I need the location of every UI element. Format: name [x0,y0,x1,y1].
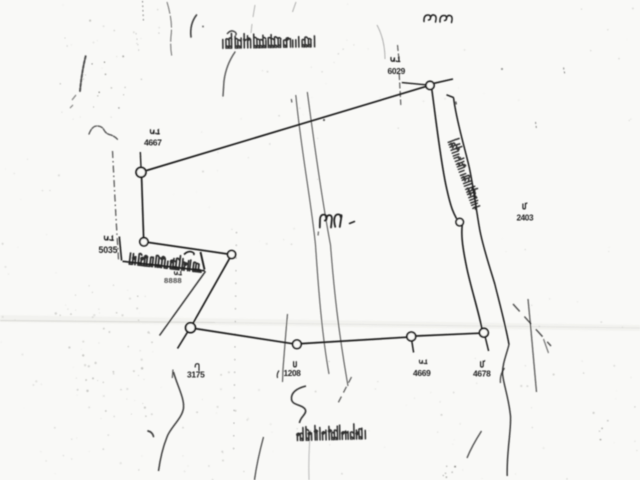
svg-text:6029: 6029 [388,66,406,76]
svg-text:2403: 2403 [517,214,534,223]
svg-text:1208: 1208 [284,369,302,378]
svg-text:8888: 8888 [164,276,182,285]
svg-text:4667: 4667 [144,138,162,148]
svg-text:3175: 3175 [187,369,205,379]
svg-text:5035: 5035 [99,245,118,255]
svg-text:4678: 4678 [473,368,491,378]
svg-text:4669: 4669 [413,368,431,378]
